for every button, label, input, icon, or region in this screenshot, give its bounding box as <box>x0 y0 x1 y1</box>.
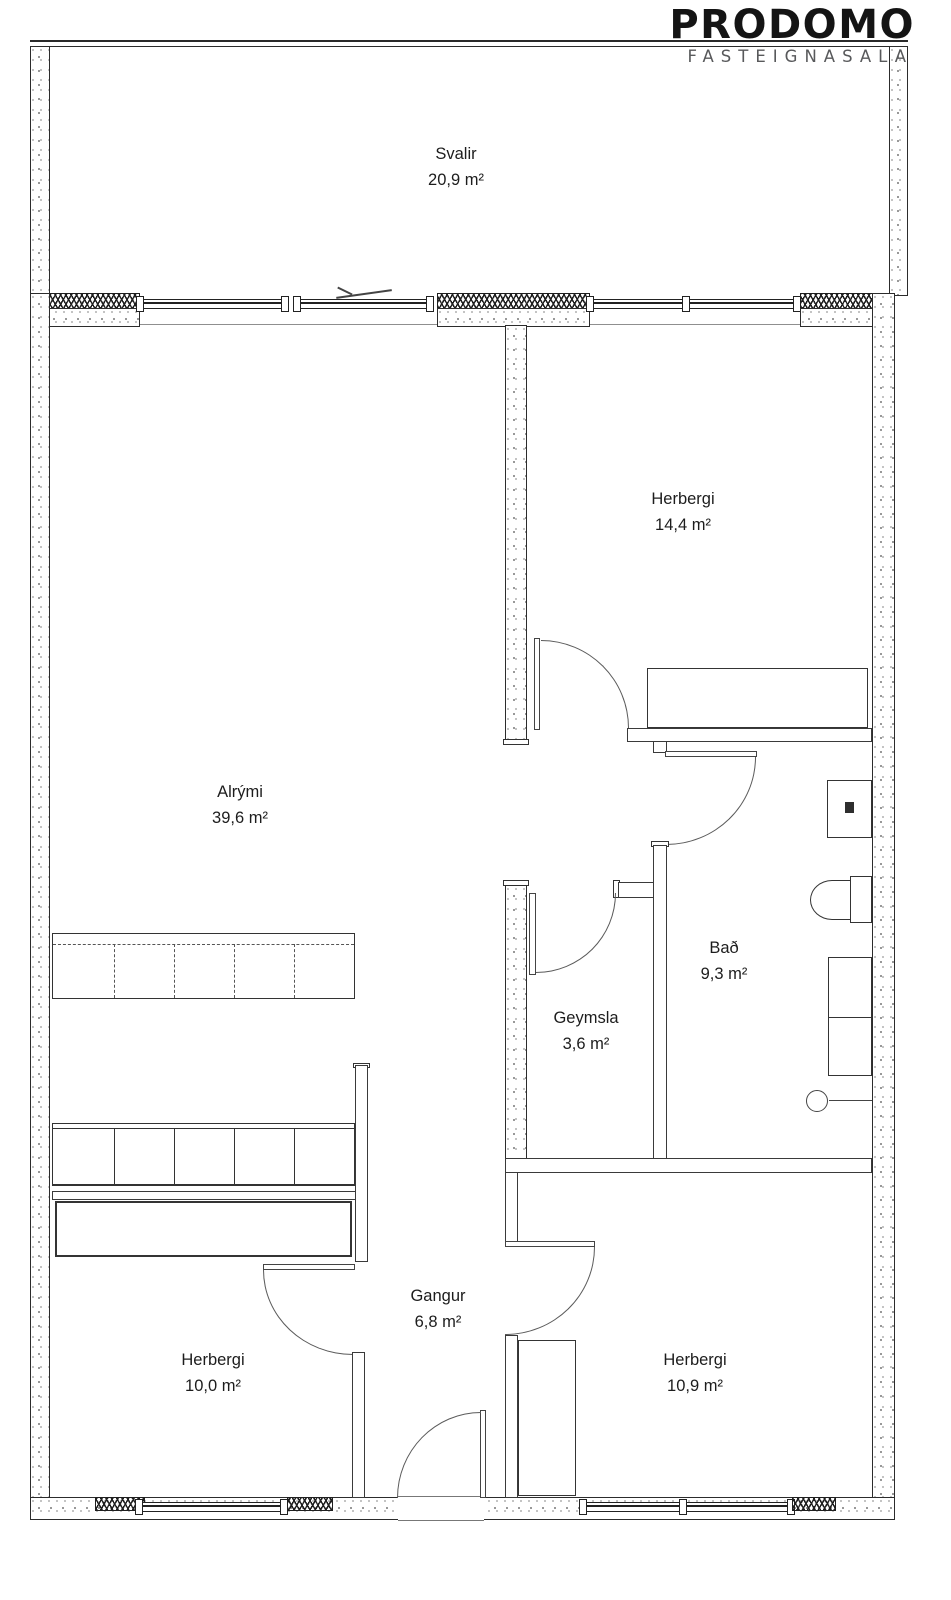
room-label-alrymi: Alrými 39,6 m² <box>212 780 268 831</box>
room-area: 20,9 m² <box>428 168 484 194</box>
wall-gangur-herbergi-br-upper <box>505 1172 518 1245</box>
insulation-segment <box>287 1497 333 1511</box>
floor-plan-canvas: Svalir 20,9 m² Herbergi 14,4 m² Alrými 3… <box>0 0 951 1600</box>
room-label-geymsla: Geymsla 3,6 m² <box>553 1006 618 1057</box>
balcony-wall-left <box>30 46 50 296</box>
cabinet-divider <box>234 944 235 998</box>
insulation-segment <box>792 1497 836 1511</box>
room-label-herbergi-top: Herbergi 14,4 m² <box>651 487 714 538</box>
wall-geymsla-bad <box>653 845 667 1165</box>
room-label-herbergi-br: Herbergi 10,9 m² <box>663 1348 726 1399</box>
insulation-segment <box>45 293 140 309</box>
upper-cabinet-dashed-line <box>53 944 354 945</box>
room-label-bad: Bað 9,3 m² <box>701 936 748 987</box>
kitchen-counter-lower <box>52 1123 355 1186</box>
room-name: Herbergi <box>663 1348 726 1374</box>
room-label-svalir: Svalir 20,9 m² <box>428 142 484 193</box>
room-area: 3,6 m² <box>553 1032 618 1058</box>
shower-drain-circle <box>806 1090 828 1112</box>
room-area: 6,8 m² <box>410 1310 465 1336</box>
window-jamb <box>293 296 301 312</box>
brand-name: PRODOMO <box>669 4 915 46</box>
insulation-segment <box>437 293 590 309</box>
window-top-left <box>140 299 288 309</box>
wall-herbergi-bl-gangur-lower <box>352 1352 365 1498</box>
balcony-door-window <box>296 299 432 309</box>
room-name: Geymsla <box>553 1006 618 1032</box>
wall-alrymi-herbergi <box>505 325 527 742</box>
room-label-gangur: Gangur 6,8 m² <box>410 1284 465 1335</box>
counter-edge-line <box>53 1128 354 1129</box>
wall-end-cap <box>503 739 529 745</box>
window-bottom-left <box>139 1502 285 1512</box>
room-area: 14,4 m² <box>651 513 714 539</box>
room-name: Herbergi <box>651 487 714 513</box>
cabinet-divider <box>174 1129 175 1184</box>
window-jamb <box>426 296 434 312</box>
cabinet-divider <box>114 944 115 998</box>
door-arc-entrance <box>397 1412 481 1498</box>
cabinet-divider <box>174 944 175 998</box>
room-name: Herbergi <box>181 1348 244 1374</box>
room-area: 10,9 m² <box>663 1374 726 1400</box>
wall-alrymi-geymsla <box>505 885 527 1160</box>
room-area: 39,6 m² <box>212 806 268 832</box>
window-mullion <box>679 1499 687 1515</box>
wardrobe-herbergi-br <box>518 1340 576 1496</box>
entrance-door-opening <box>398 1496 484 1521</box>
toilet-bowl <box>810 880 854 920</box>
brand-logo: PRODOMO FASTEIGNASALA <box>669 4 915 66</box>
wall-herbergi-bl-gangur-upper <box>355 1065 368 1262</box>
cabinet-divider <box>294 1129 295 1184</box>
exterior-wall-right <box>872 293 895 1520</box>
room-name: Gangur <box>410 1284 465 1310</box>
door-arc-herbergi-top <box>541 640 629 728</box>
wall-alrymi-herbergi-bl <box>52 1191 368 1200</box>
room-name: Bað <box>701 936 748 962</box>
window-jamb <box>136 296 144 312</box>
slide-arrow-head <box>337 287 352 295</box>
bath-appliance-1 <box>828 957 872 1018</box>
wall-herbergi-bad <box>627 728 872 742</box>
room-name: Alrými <box>212 780 268 806</box>
room-label-herbergi-bl: Herbergi 10,0 m² <box>181 1348 244 1399</box>
cabinet-divider <box>114 1129 115 1184</box>
exterior-wall-left <box>30 293 50 1520</box>
cabinet-divider <box>294 944 295 998</box>
concrete-segment <box>45 308 140 327</box>
bath-appliance-2 <box>828 1017 872 1076</box>
shower-drain-line <box>829 1100 872 1101</box>
door-leaf-herbergi-top <box>534 638 540 730</box>
kitchen-counter-upper <box>52 933 355 999</box>
window-jamb <box>281 296 289 312</box>
toilet-tank <box>850 876 872 923</box>
wall-gangur-herbergi-br-lower <box>505 1335 518 1498</box>
cabinet-divider <box>234 1129 235 1184</box>
wardrobe-herbergi-bl <box>55 1201 352 1257</box>
room-name: Svalir <box>428 142 484 168</box>
room-area: 10,0 m² <box>181 1374 244 1400</box>
door-leaf-geymsla <box>529 893 536 975</box>
door-arc-herbergi-br <box>505 1247 595 1335</box>
window-jamb <box>586 296 594 312</box>
room-area: 9,3 m² <box>701 962 748 988</box>
door-arc-herbergi-bl <box>263 1270 353 1355</box>
wall-stub-geymsla <box>618 882 654 898</box>
window-jamb <box>135 1499 143 1515</box>
washbasin-tap <box>845 802 854 813</box>
window-bottom-right <box>583 1502 792 1512</box>
wall-gangur-top <box>505 1158 872 1173</box>
window-mullion <box>682 296 690 312</box>
wardrobe-herbergi-top <box>647 668 868 728</box>
window-jamb <box>579 1499 587 1515</box>
window-top-right <box>590 299 800 309</box>
door-arc-bad <box>666 757 756 845</box>
balcony-wall-right <box>889 46 908 296</box>
door-arc-geymsla <box>536 893 616 973</box>
brand-subtitle: FASTEIGNASALA <box>669 47 913 66</box>
